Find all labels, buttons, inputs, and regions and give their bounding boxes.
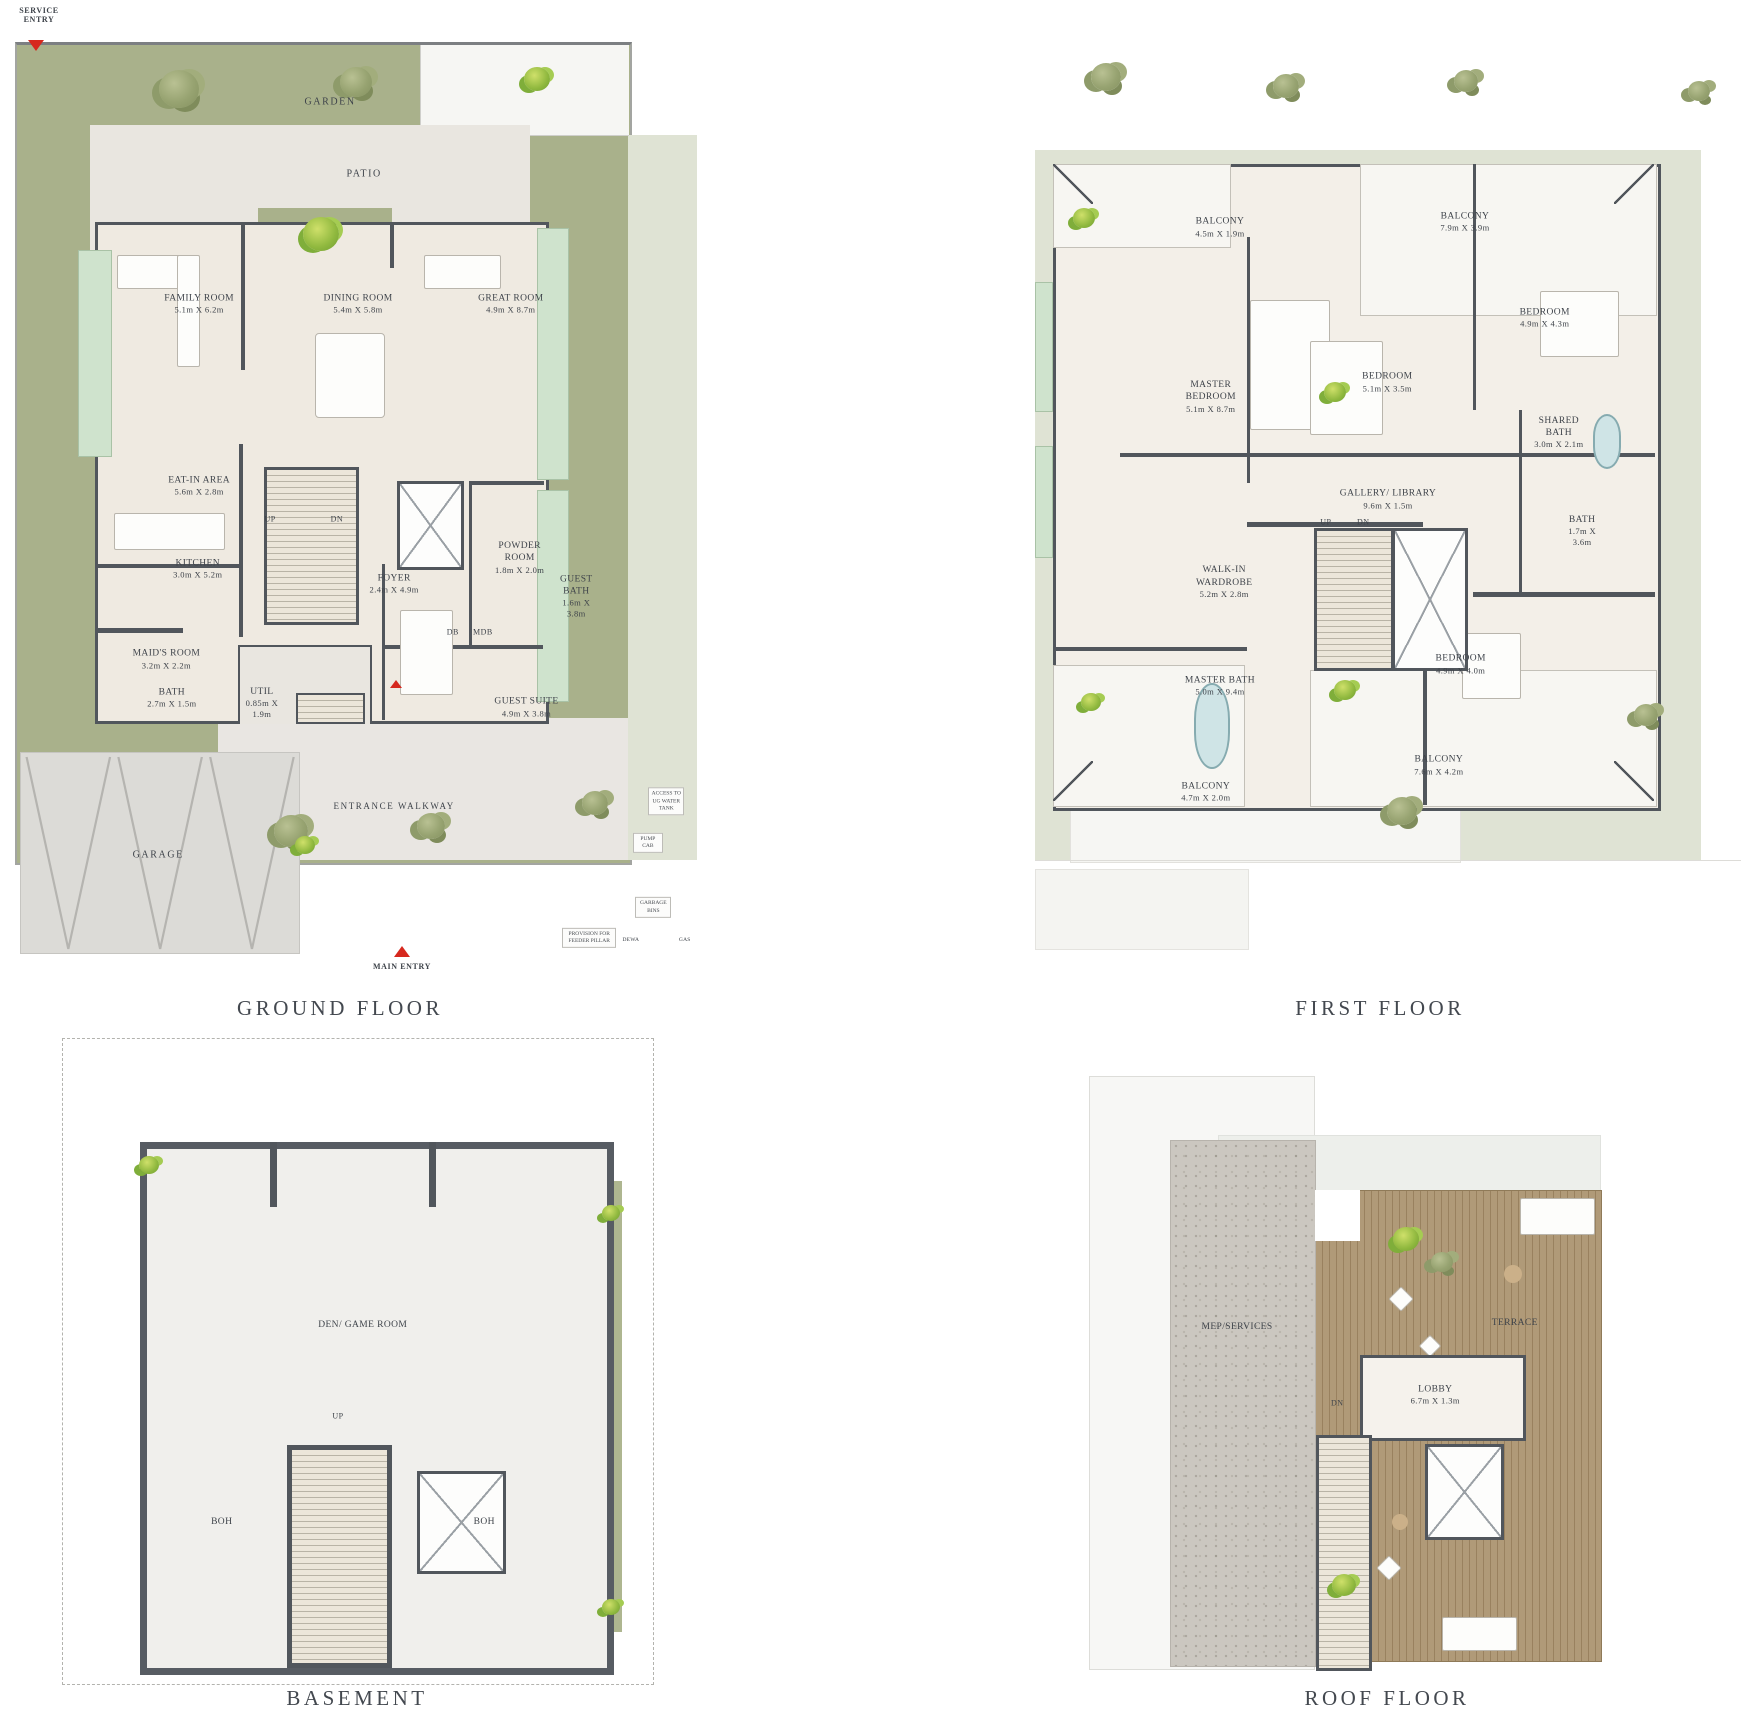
room-label-balcony: BALCONY7.6m X 4.2m xyxy=(1414,754,1463,777)
room-label-great-room: GREAT ROOM4.9m X 8.7m xyxy=(478,292,543,315)
foyer-entry-marker-icon xyxy=(390,680,402,688)
first-elevator-icon xyxy=(1392,528,1469,671)
mdb-marker: MDB xyxy=(473,627,493,636)
wall xyxy=(469,481,472,647)
ground-glass-strip-left xyxy=(78,250,112,457)
annotation-garbage-bins: GARBAGE BINS xyxy=(635,897,671,917)
great-room-sofa xyxy=(424,255,501,289)
roof-floor-plan: MEP/SERVICES TERRACE LOBBY6.7m X 1.3m DN xyxy=(1050,1060,1610,1700)
tree-icon xyxy=(1634,704,1658,726)
patio-label: PATIO xyxy=(346,169,381,180)
tree-icon xyxy=(340,67,372,97)
balcony-corner-cut-icon xyxy=(1614,761,1654,801)
first-ghost-garage xyxy=(1035,869,1249,949)
roof-elevator-icon xyxy=(1425,1444,1504,1540)
basement-plan: DEN/ GAME ROOM UP BOH BOH xyxy=(62,1038,654,1685)
garden-label: GARDEN xyxy=(304,96,355,107)
ground-side-strip xyxy=(628,135,697,861)
room-label-terrace: TERRACE xyxy=(1492,1317,1538,1329)
plant-icon xyxy=(602,1599,620,1615)
ground-elevator-icon xyxy=(397,481,464,570)
plant-icon xyxy=(1393,1227,1419,1251)
wall xyxy=(239,444,242,638)
room-label-shared-bath: SHARED BATH3.0m X 2.1m xyxy=(1533,415,1585,451)
plant-icon xyxy=(1431,1252,1453,1272)
room-label-walk-in-wardrobe: WALK-IN WARDROBE5.2m X 2.8m xyxy=(1191,564,1257,600)
room-label-maids-room: MAID'S ROOM3.2m X 2.2m xyxy=(133,648,201,671)
tree-icon xyxy=(417,813,445,839)
dining-table xyxy=(315,333,385,418)
wall xyxy=(1120,453,1655,458)
room-label-guest-suite: GUEST SUITE4.9m X 3.8m xyxy=(494,696,558,719)
room-label-bedroom: BEDROOM4.9m X 4.3m xyxy=(1520,306,1570,329)
service-entry-label: SERVICE ENTRY xyxy=(10,6,68,24)
up-marker: UP xyxy=(1320,517,1331,526)
terrace-sofa xyxy=(1520,1198,1595,1235)
room-label-master-bath: MASTER BATH5.0m X 9.4m xyxy=(1185,674,1255,697)
ground-floor-plan: GARDEN PATIO GARAGE ENTRANCE WALKWAY FAM… xyxy=(15,38,697,960)
plant-icon xyxy=(1332,1574,1356,1596)
entrance-walkway-label: ENTRANCE WALKWAY xyxy=(334,801,455,811)
room-label-balcony: BALCONY7.9m X 3.9m xyxy=(1440,210,1489,233)
first-floor-plan: BALCONY4.5m X 1.9m BALCONY7.9m X 3.9m MA… xyxy=(1035,45,1741,957)
up-marker: UP xyxy=(264,515,275,524)
wall xyxy=(1519,410,1523,592)
tree-icon xyxy=(1273,74,1299,98)
plant-icon xyxy=(1334,680,1356,700)
main-entry-label: MAIN ENTRY xyxy=(373,962,431,971)
plant-icon xyxy=(1324,382,1346,402)
wall xyxy=(429,1142,437,1207)
room-label-balcony: BALCONY4.5m X 1.9m xyxy=(1195,216,1244,239)
room-label-kitchen: KITCHEN3.0m X 5.2m xyxy=(173,557,222,580)
annotation-pump-cab: PUMP CAB xyxy=(633,833,663,853)
basement-title: BASEMENT xyxy=(286,1686,427,1711)
room-label-eat-in-area: EAT-IN AREA5.6m X 2.8m xyxy=(168,474,230,497)
wall xyxy=(390,222,393,268)
room-label-boh: BOH xyxy=(211,1516,232,1528)
plant-icon xyxy=(139,1156,159,1174)
room-label-foyer: FOYER2.4m X 4.9m xyxy=(370,572,419,595)
wall xyxy=(270,1142,278,1207)
wall xyxy=(1053,647,1247,652)
tree-icon xyxy=(295,836,315,854)
tree-icon xyxy=(1688,81,1710,101)
db-marker: DB xyxy=(447,627,459,636)
basement-stair xyxy=(287,1445,391,1668)
room-label-balcony: BALCONY4.7m X 2.0m xyxy=(1181,780,1230,803)
terrace-table xyxy=(1392,1514,1408,1530)
guest-bed xyxy=(400,610,453,695)
balcony-corner-cut-icon xyxy=(1614,164,1654,204)
ground-floor-title: GROUND FLOOR xyxy=(237,996,443,1021)
roof-floor-title: ROOF FLOOR xyxy=(1304,1686,1469,1711)
dn-marker: DN xyxy=(1357,517,1370,526)
annotation-water-tank: ACCESS TO UG WATER TANK xyxy=(648,788,684,815)
room-label-bedroom: BEDROOM5.1m X 3.5m xyxy=(1362,371,1412,394)
main-entry-marker-icon xyxy=(394,946,410,957)
plant-icon xyxy=(1081,693,1101,711)
ground-glass-strip-right-upper xyxy=(537,228,570,480)
dn-marker: DN xyxy=(331,515,344,524)
wall xyxy=(1247,522,1424,527)
tree-icon xyxy=(1091,63,1121,91)
wall xyxy=(241,222,244,370)
ground-stair xyxy=(264,467,359,625)
ground-entry-steps xyxy=(296,693,365,725)
up-marker: UP xyxy=(332,1412,343,1421)
dewa-marker: DEWA xyxy=(623,937,640,943)
room-label-master-bedroom: MASTER BEDROOM5.1m X 8.7m xyxy=(1180,379,1242,415)
tree-icon xyxy=(303,217,339,251)
site-line xyxy=(1035,860,1741,861)
tree-icon xyxy=(159,70,199,108)
first-glass-strip-left xyxy=(1035,282,1053,412)
gas-marker: GAS xyxy=(679,937,691,943)
room-label-mep-services: MEP/SERVICES xyxy=(1201,1321,1272,1333)
terrace-sofa xyxy=(1442,1617,1517,1651)
terrace-table xyxy=(1504,1265,1522,1283)
plant-icon xyxy=(1073,208,1095,228)
roof-deck-notch xyxy=(1315,1190,1360,1241)
roof-stair xyxy=(1316,1435,1372,1671)
shared-bathtub-icon xyxy=(1593,414,1622,468)
room-label-bath: BATH1.7m X 3.6m xyxy=(1564,514,1600,548)
wall xyxy=(1473,592,1655,597)
room-label-boh: BOH xyxy=(474,1516,495,1528)
wall xyxy=(95,628,184,633)
floor-plan-sheet: SERVICE ENTRY xyxy=(0,0,1746,1724)
wall xyxy=(469,481,544,486)
ground-site-notch xyxy=(420,45,629,135)
wall xyxy=(1473,164,1477,410)
garage-label: GARAGE xyxy=(133,849,184,860)
room-label-lobby: LOBBY6.7m X 1.3m xyxy=(1411,1383,1460,1406)
kitchen-island xyxy=(114,513,225,550)
room-label-bath: BATH2.7m X 1.5m xyxy=(147,686,196,709)
room-label-guest-bath: GUEST BATH1.6m X 3.8m xyxy=(555,573,597,620)
first-floor-title: FIRST FLOOR xyxy=(1295,996,1464,1021)
tree-icon xyxy=(524,67,550,91)
room-label-dining-room: DINING ROOM5.4m X 5.8m xyxy=(324,292,393,315)
tree-icon xyxy=(1387,797,1417,825)
room-label-powder-room: POWDER ROOM1.8m X 2.0m xyxy=(495,540,545,576)
first-stair xyxy=(1314,528,1394,671)
room-label-bedroom: BEDROOM4.9m X 4.0m xyxy=(1436,653,1486,676)
roof-mep-area xyxy=(1170,1140,1315,1667)
plant-icon xyxy=(602,1205,620,1221)
service-entry-marker-icon xyxy=(28,40,44,51)
room-label-den-game-room: DEN/ GAME ROOM xyxy=(318,1319,407,1331)
first-glass-strip-left-lower xyxy=(1035,446,1053,557)
annotation-feeder-pillar: PROVISION FOR FEEDER PILLAR xyxy=(562,928,616,948)
room-label-family-room: FAMILY ROOM5.1m X 6.2m xyxy=(164,292,234,315)
tree-icon xyxy=(1454,70,1478,92)
balcony-corner-cut-icon xyxy=(1053,761,1093,801)
dn-marker: DN xyxy=(1331,1399,1344,1408)
room-label-gallery-library: GALLERY/ LIBRARY9.6m X 1.5m xyxy=(1340,487,1436,510)
balcony-corner-cut-icon xyxy=(1053,164,1093,204)
tree-icon xyxy=(582,791,608,815)
room-label-util: UTIL0.85m X 1.9m xyxy=(241,686,283,720)
